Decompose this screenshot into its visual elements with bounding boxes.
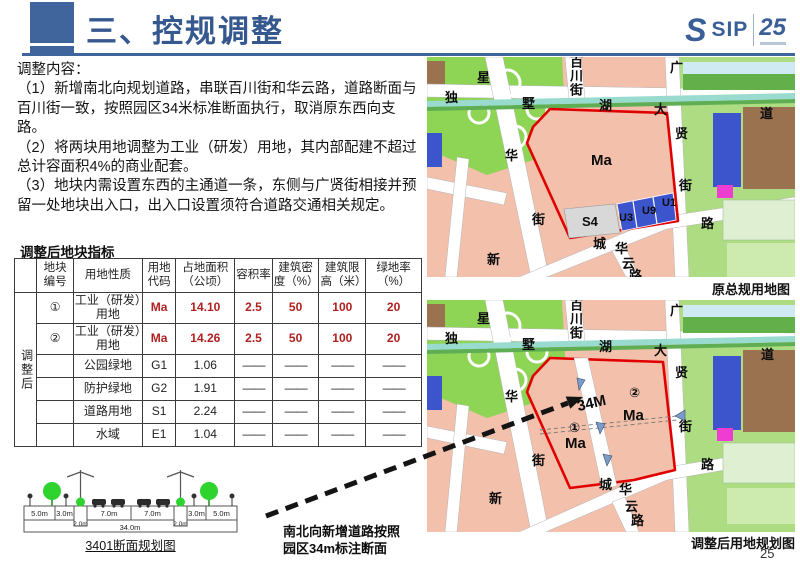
plot-index-table: 地块编号 用地性质 用地代码 占地面积（公顷） 容积率 建筑密度（%） 建筑限高… — [14, 258, 422, 447]
street-label-shu: 墅 — [522, 338, 535, 351]
street-label-baichuanjie: 百川街 — [569, 57, 582, 97]
plot1-code: Ma — [565, 436, 586, 451]
header-rule — [22, 53, 795, 56]
parcel-label-u1: U1 — [662, 198, 676, 209]
street-label-lu: 路 — [629, 269, 642, 277]
adjustment-content: 调整内容： （1）新增南北向规划道路，串联百川街和华云路，道路断面与百川街一致，… — [17, 61, 422, 216]
street-label-da: 大 — [654, 103, 667, 116]
col-header: 用地代码 — [142, 259, 175, 293]
table-row: ② 工业（研发）用地 Ma 14.26 2.5 50 100 20 — [15, 324, 422, 355]
parcel-label-u3: U3 — [619, 213, 633, 224]
road-cross-section-diagram: 5.0m 3.0m 2.0m 7.0m 7.0m 2.0m 3.0m 5.0m … — [16, 460, 266, 543]
content-item-2: （2）将两块用地调整为工业（研发）用地，其内部配建不超过总计容面积4%的商业配套… — [17, 139, 422, 178]
street-label-xing: 星 — [477, 71, 490, 84]
sip-logo: S SIP 25 — [685, 10, 786, 50]
table-row: 公园绿地 G1 1.06 —— —— —— —— — [15, 355, 422, 378]
row-group-label: 调整后 — [15, 293, 37, 447]
street-label-jie: 街 — [679, 179, 692, 192]
page-title: 三、控规调整 — [86, 6, 284, 51]
table-row: 道路用地 S1 2.24 —— —— —— —— — [15, 401, 422, 424]
col-header: 建筑密度（%） — [272, 259, 319, 293]
svg-text:3.0m: 3.0m — [56, 509, 73, 518]
street-label-guang: 广 — [670, 304, 683, 317]
col-header: 绿地率（%） — [366, 259, 422, 293]
svg-text:5.0m: 5.0m — [213, 509, 230, 518]
tree-icon — [43, 482, 218, 507]
street-label-cheng: 城 — [599, 478, 612, 491]
col-header: 建筑限高（米） — [319, 259, 366, 293]
table-row: 防护绿地 G2 1.91 —— —— —— —— — [15, 378, 422, 401]
corner-cell — [15, 259, 37, 293]
page-number: 25 — [760, 546, 774, 561]
table-row: 水域 E1 1.04 —— —— —— —— — [15, 424, 422, 447]
street-label-jie: 街 — [679, 420, 692, 433]
street-label-hu: 湖 — [599, 340, 612, 353]
street-label-dao: 道 — [761, 348, 774, 361]
col-header: 用地性质 — [73, 259, 142, 293]
new-road-annotation: 南北向新增道路按照 园区34m标注断面 — [283, 523, 413, 557]
parcel-label-u9: U9 — [642, 206, 656, 217]
street-label-du: 独 — [445, 332, 458, 345]
content-item-3: （3）地块内需设置东西的主通道一条，东侧与广贤街相接并预留一处地块出入口，出入口… — [17, 177, 422, 216]
street-label-xing: 星 — [477, 312, 490, 325]
table-header-row: 地块编号 用地性质 用地代码 占地面积（公顷） 容积率 建筑密度（%） 建筑限高… — [15, 259, 422, 293]
parcel-label-s4: S4 — [582, 215, 598, 228]
sip-s-icon: S — [685, 14, 706, 46]
street-label-hua: 华 — [615, 242, 628, 255]
street-label-shu: 墅 — [522, 97, 535, 110]
content-heading: 调整内容： — [17, 61, 422, 80]
svg-text:2.0m: 2.0m — [173, 521, 187, 528]
street-label-jie: 街 — [532, 454, 545, 467]
street-label-lu: 路 — [701, 217, 714, 230]
street-label-hua: 华 — [505, 149, 518, 162]
svg-text:3.0m: 3.0m — [188, 509, 205, 518]
street-label-cheng: 城 — [593, 237, 606, 250]
street-label-lu: 路 — [631, 514, 644, 527]
street-label-jie: 街 — [532, 213, 545, 226]
svg-text:7.0m: 7.0m — [144, 509, 161, 518]
header-accent-block — [30, 2, 74, 43]
street-lamp-icon — [67, 470, 194, 506]
street-label-hu: 湖 — [599, 99, 612, 112]
street-label-xin: 新 — [487, 253, 500, 266]
svg-text:7.0m: 7.0m — [101, 509, 118, 518]
content-item-1: （1）新增南北向规划道路，串联百川街和华云路，道路断面与百川街一致，按照园区34… — [17, 80, 422, 138]
logo-divider — [753, 14, 754, 46]
parcel-label-ma: Ma — [591, 153, 612, 168]
slide: 三、控规调整 S SIP 25 调整内容： （1）新增南北向规划道路，串联百川街… — [0, 0, 800, 565]
svg-text:5.0m: 5.0m — [31, 509, 48, 518]
svg-text:2.0m: 2.0m — [73, 521, 87, 528]
street-label-hua: 华 — [619, 483, 632, 496]
street-label-lu: 路 — [701, 458, 714, 471]
original-map-caption: 原总规用地图 — [640, 279, 790, 298]
col-header: 容积率 — [235, 259, 273, 293]
plot1-number: ① — [569, 421, 580, 434]
section-diagram-caption: 3401断面规划图 — [58, 535, 203, 554]
original-plan-map: 星 独 墅 百川街 湖 大 广 道 贤 街 路 华 街 新 城 华 云 路 Ma… — [427, 57, 795, 277]
anniversary-25-icon: 25 — [759, 16, 786, 45]
street-label-guang: 广 — [670, 61, 683, 74]
street-label-xin: 新 — [489, 492, 502, 505]
street-label-dao: 道 — [760, 107, 773, 120]
street-label-hua: 华 — [505, 390, 518, 403]
header-accent-bar — [30, 46, 74, 53]
plot2-number: ② — [629, 386, 640, 399]
plot2-code: Ma — [623, 408, 644, 423]
street-label-da: 大 — [654, 344, 667, 357]
street-label-du: 独 — [445, 91, 458, 104]
table-row: 调整后 ① 工业（研发）用地 Ma 14.10 2.5 50 100 20 — [15, 293, 422, 324]
svg-text:34.0m: 34.0m — [120, 523, 141, 532]
street-label-yun: 云 — [625, 500, 638, 513]
adjusted-plan-map: 星 独 墅 百川街 湖 大 广 道 贤 街 路 华 街 新 城 华 云 路 34… — [427, 300, 795, 532]
col-header: 地块编号 — [37, 259, 74, 293]
col-header: 占地面积（公顷） — [176, 259, 235, 293]
street-label-xian: 贤 — [675, 127, 688, 140]
street-label-baichuanjie: 百川街 — [569, 300, 582, 340]
street-label-xian: 贤 — [675, 366, 688, 379]
sip-logo-text: SIP — [711, 18, 748, 42]
